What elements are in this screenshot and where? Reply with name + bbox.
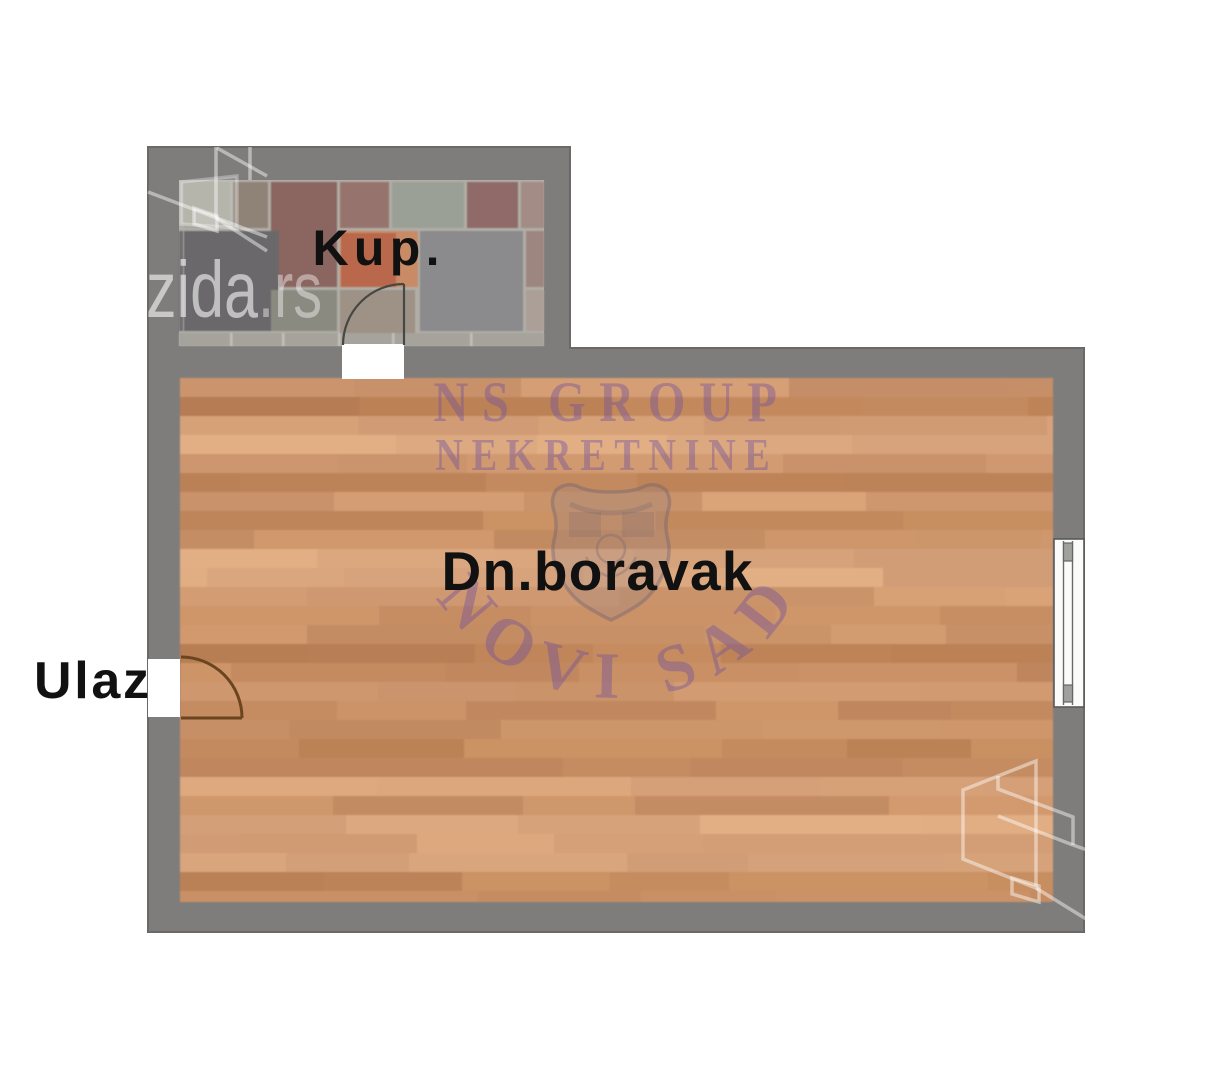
svg-text:Dn.boravak: Dn.boravak (442, 540, 753, 602)
svg-text:NS GROUP: NS GROUP (433, 371, 790, 433)
svg-text:NEKRETNINE: NEKRETNINE (435, 431, 778, 481)
svg-text:zida: zida (146, 245, 258, 334)
svg-text:Ulaz: Ulaz (34, 652, 149, 710)
